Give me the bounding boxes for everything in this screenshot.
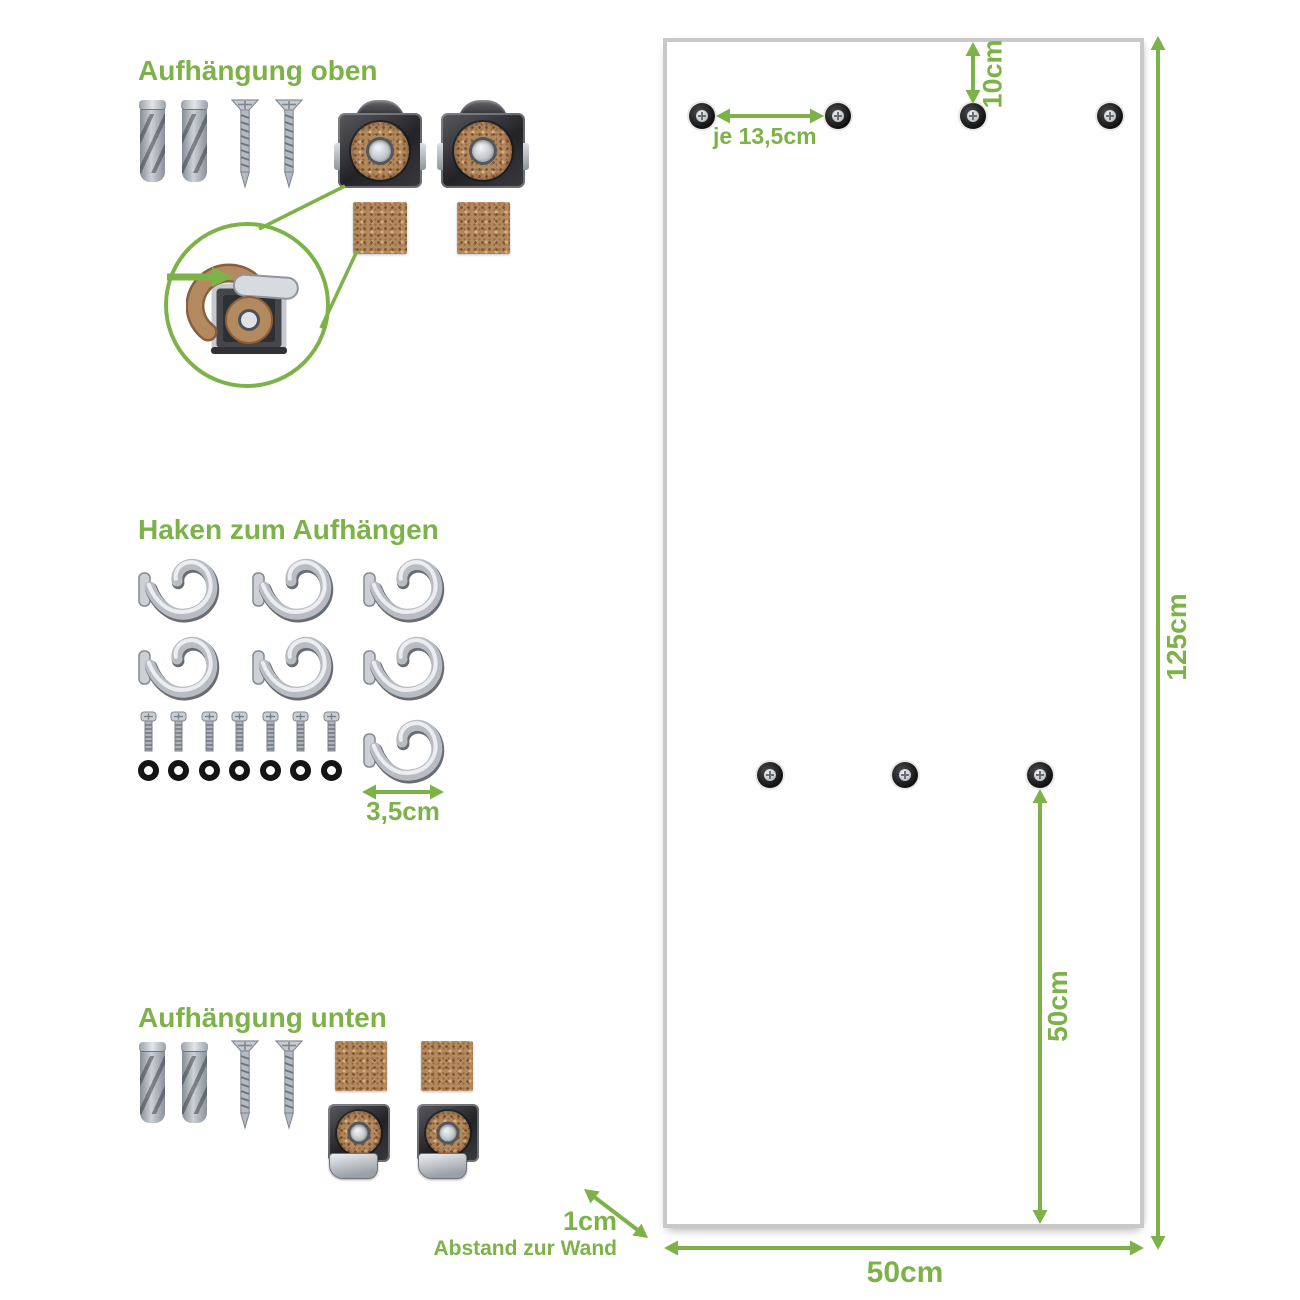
washer-icon [290, 760, 311, 781]
machine-screw-icon [262, 711, 279, 754]
mounting-clip-bottom-icon [417, 1104, 479, 1179]
cork-pad-icon [335, 1041, 387, 1091]
dim-arrow-width [664, 1241, 1144, 1256]
machine-screw-icon [170, 711, 187, 754]
height-label: 125cm [1161, 593, 1193, 680]
clip-hole [472, 140, 494, 162]
screw-icon [275, 1038, 303, 1130]
wall-gap-caption: Abstand zur Wand [417, 1237, 617, 1261]
machine-screw-icon [231, 711, 248, 754]
machine-screw-icon [323, 711, 340, 754]
machine-screw-icon [292, 711, 309, 754]
cup-hook-icon [250, 631, 334, 705]
cup-hook-icon [250, 553, 334, 627]
clip-spring-lip [329, 1153, 378, 1179]
wall-plug-icon [182, 1042, 207, 1123]
washer-icon [321, 760, 342, 781]
clip-side-view [186, 246, 308, 360]
machine-screw-icon [140, 711, 157, 754]
mounting-clip-bottom-icon [328, 1104, 390, 1179]
cork-ring [426, 1111, 470, 1155]
screw-head-icon [899, 769, 911, 781]
mount-point [825, 103, 851, 129]
leader-line-clip-to-detail [259, 186, 345, 229]
cork-pad-icon [353, 202, 407, 254]
washer-icon [229, 760, 250, 781]
wall-plug-icon [140, 1042, 165, 1123]
cork-ring [351, 122, 409, 180]
mounting-clip-icon [338, 100, 422, 188]
machine-screw-icon [201, 711, 218, 754]
section-heading-top-mount: Aufhängung oben [138, 55, 378, 87]
cup-hook-icon [361, 553, 445, 627]
hook-size-label: 3,5cm [366, 796, 440, 827]
width-label: 50cm [867, 1256, 944, 1290]
washer-icon [199, 760, 220, 781]
bottom-row-height-label: 50cm [1042, 970, 1074, 1042]
screw-icon [231, 1038, 259, 1130]
screw-head-icon [1104, 110, 1116, 122]
cup-hook-icon [361, 714, 445, 788]
mount-point [1097, 103, 1123, 129]
clip-hole [369, 140, 391, 162]
hole-spacing-label: je 13,5cm [713, 123, 817, 150]
section-heading-bottom-mount: Aufhängung unten [138, 1002, 387, 1034]
clip-spring-lip [418, 1153, 467, 1179]
mount-point [892, 762, 918, 788]
wall-plug-icon [140, 100, 165, 182]
mounting-clip-icon [441, 100, 525, 188]
mount-point [1027, 762, 1053, 788]
wall-plug-icon [182, 100, 207, 182]
screw-head-icon [1034, 769, 1046, 781]
mount-point [757, 762, 783, 788]
screw-head-icon [764, 769, 776, 781]
washer-icon [168, 760, 189, 781]
cork-pad-icon [457, 202, 510, 254]
screw-head-icon [832, 110, 844, 122]
washer-icon [138, 760, 159, 781]
top-offset-label: 10cm [978, 39, 1009, 108]
screw-head-icon [696, 110, 708, 122]
cup-hook-icon [136, 553, 220, 627]
glass-panel-outline [663, 38, 1144, 1228]
screw-icon [231, 97, 259, 189]
cup-hook-icon [136, 631, 220, 705]
cork-ring [337, 1111, 381, 1155]
clip-hole [440, 1125, 457, 1142]
washer-icon [260, 760, 281, 781]
screw-head-icon [967, 110, 979, 122]
cork-pad-icon [421, 1041, 473, 1091]
screw-icon [275, 97, 303, 189]
cork-ring [454, 122, 512, 180]
wall-gap-label: 1cm [437, 1206, 617, 1237]
mount-point [689, 103, 715, 129]
section-heading-hooks: Haken zum Aufhängen [138, 514, 439, 546]
cup-hook-icon [361, 631, 445, 705]
clip-hole [351, 1125, 368, 1142]
